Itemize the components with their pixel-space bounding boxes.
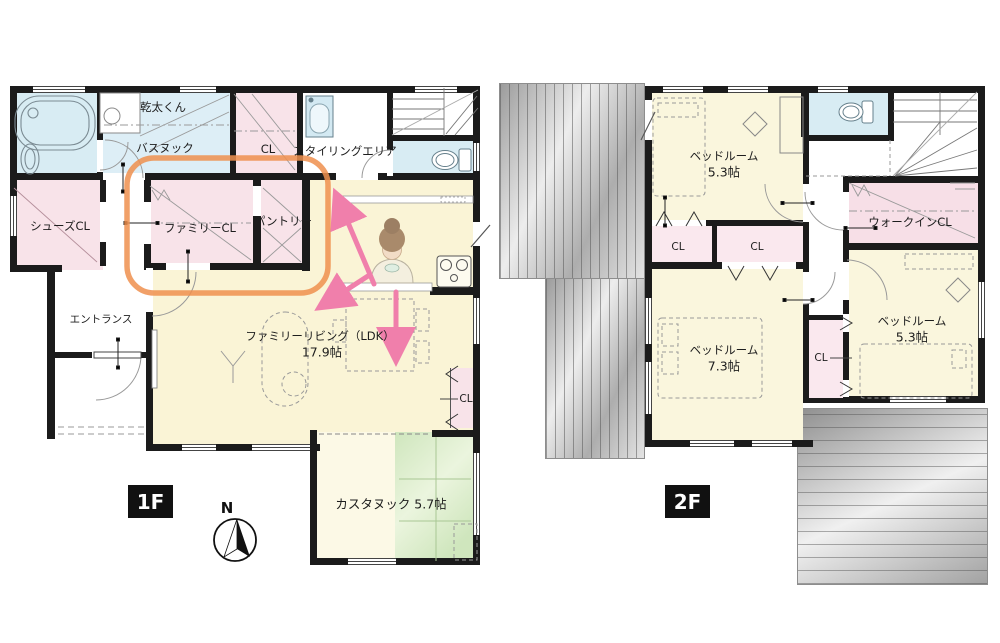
room-stairs-1f bbox=[390, 86, 480, 141]
floor-badge-2f: 2F bbox=[665, 485, 710, 518]
wall-segment bbox=[712, 225, 717, 267]
label-closet-top: CL bbox=[261, 142, 275, 156]
label-closet-a: CL bbox=[671, 241, 684, 253]
label-walk-in-closet: ウォークインCL bbox=[868, 214, 951, 230]
wall-segment bbox=[430, 287, 480, 295]
room-stairs-2f bbox=[892, 92, 978, 178]
label-bedroom3-size: 5.3帖 bbox=[896, 327, 928, 346]
window bbox=[33, 86, 85, 93]
label-bedroom1-size: 5.3帖 bbox=[708, 162, 740, 181]
wall-segment bbox=[10, 173, 480, 180]
wall-segment bbox=[807, 398, 847, 403]
floor-badge-1f: 1F bbox=[128, 485, 173, 518]
compass-north-label: N bbox=[221, 499, 234, 517]
wall-segment bbox=[805, 135, 893, 141]
wall-segment bbox=[310, 430, 317, 565]
door-opening bbox=[166, 263, 210, 270]
door-opening bbox=[722, 262, 796, 269]
door-opening bbox=[645, 100, 652, 140]
door-opening bbox=[652, 220, 706, 226]
label-pantry: パントリー bbox=[254, 213, 312, 229]
window bbox=[473, 453, 480, 535]
door-opening bbox=[97, 140, 103, 172]
window bbox=[10, 196, 17, 236]
stair-railing bbox=[806, 140, 890, 176]
label-living-closet: CL bbox=[459, 393, 472, 405]
door-opening bbox=[100, 202, 106, 242]
window bbox=[645, 298, 652, 344]
room-corridor bbox=[103, 180, 147, 270]
balcony-lower bbox=[545, 279, 645, 459]
room-bathroom bbox=[10, 86, 103, 180]
window bbox=[645, 362, 652, 414]
door-opening bbox=[803, 184, 809, 222]
window bbox=[728, 86, 768, 93]
room-toilet-2f bbox=[805, 92, 889, 137]
label-entrance: エントランス bbox=[70, 312, 133, 327]
window bbox=[415, 86, 457, 93]
label-dryer: 乾太くん bbox=[140, 99, 186, 115]
door-opening bbox=[146, 268, 153, 312]
compass-icon bbox=[214, 519, 256, 561]
door-opening bbox=[843, 380, 849, 397]
label-closet-c: CL bbox=[814, 352, 827, 364]
wall-segment bbox=[297, 86, 303, 180]
floor-plan-canvas: 乾太くん バスヌック CL スタイリングエリア シューズCL ファミリーCL パ… bbox=[0, 0, 1000, 643]
door-opening bbox=[103, 173, 145, 180]
label-styling-area: スタイリングエリア bbox=[293, 143, 397, 159]
roof bbox=[797, 408, 988, 585]
window bbox=[252, 444, 310, 451]
window bbox=[818, 86, 848, 93]
door-opening bbox=[803, 272, 809, 304]
door-opening bbox=[336, 173, 378, 180]
door-opening bbox=[843, 192, 849, 230]
window bbox=[690, 440, 734, 447]
wall-segment bbox=[432, 430, 480, 437]
door-opening bbox=[843, 262, 849, 300]
label-custom-nook: カスタヌック 5.7帖 bbox=[335, 494, 446, 513]
door-opening bbox=[144, 202, 151, 244]
label-bedroom2-size: 7.3帖 bbox=[708, 356, 740, 375]
room-styling-area bbox=[300, 86, 390, 180]
wall-segment bbox=[807, 315, 847, 320]
label-closet-b: CL bbox=[750, 241, 763, 253]
label-living-size: 17.9帖 bbox=[302, 342, 342, 361]
label-shoes-closet: シューズCL bbox=[30, 218, 90, 234]
window bbox=[473, 143, 480, 171]
window bbox=[182, 444, 216, 451]
window bbox=[180, 86, 216, 93]
window bbox=[978, 282, 985, 338]
porch bbox=[55, 356, 146, 430]
room-walk-in-closet bbox=[848, 182, 978, 244]
wall-segment bbox=[801, 86, 806, 137]
wall-segment bbox=[843, 243, 983, 250]
door-opening bbox=[92, 352, 140, 358]
room-closet-top bbox=[233, 86, 300, 180]
window bbox=[473, 298, 480, 344]
label-bath-nook: バスヌック bbox=[136, 140, 194, 156]
door-opening bbox=[473, 222, 480, 246]
label-family-closet: ファミリーCL bbox=[164, 220, 236, 236]
wall-segment bbox=[888, 86, 894, 141]
window bbox=[348, 558, 396, 565]
door-opening bbox=[253, 186, 261, 216]
door-opening bbox=[843, 314, 849, 332]
wall-segment bbox=[230, 86, 236, 180]
window bbox=[663, 86, 703, 93]
window bbox=[890, 396, 946, 403]
wall-segment bbox=[843, 176, 983, 183]
wall-segment bbox=[390, 135, 480, 141]
porch-step bbox=[70, 436, 146, 456]
window bbox=[752, 440, 792, 447]
balcony bbox=[499, 83, 645, 279]
